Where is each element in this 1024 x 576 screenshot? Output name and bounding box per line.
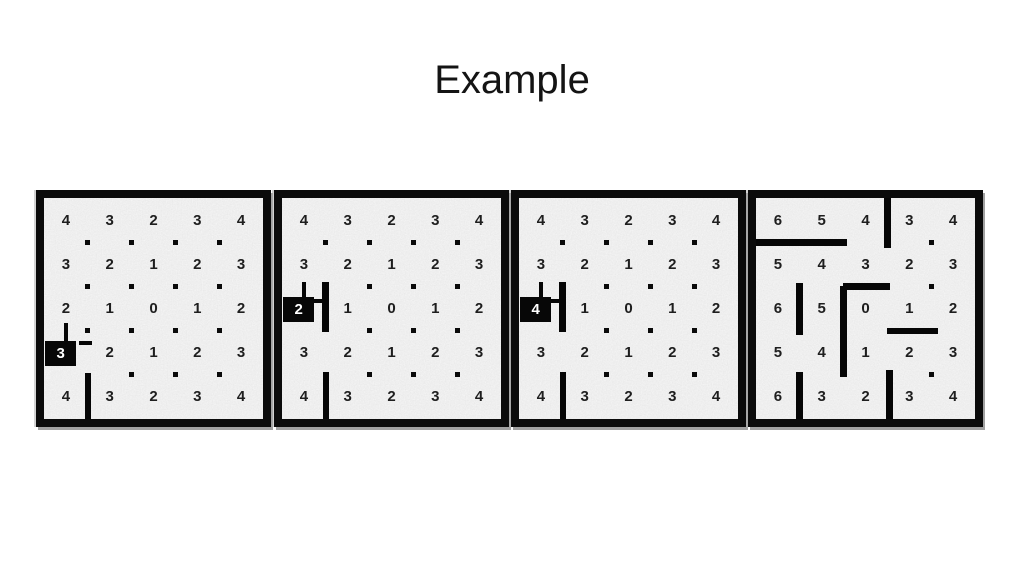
robot-cell: 4	[520, 297, 552, 322]
wall-segment	[323, 372, 329, 419]
corner-dot	[85, 240, 90, 245]
grid-cell: 2	[607, 198, 651, 242]
distance-value: 1	[861, 344, 869, 361]
corner-dot	[367, 284, 372, 289]
corner-dot	[411, 284, 416, 289]
grid-cell: 0	[607, 286, 651, 330]
distance-value: 2	[431, 256, 439, 273]
grid-cell: 4	[44, 375, 88, 419]
grid-cell: 3	[282, 331, 326, 375]
corner-dot	[129, 240, 134, 245]
distance-value: 3	[905, 388, 913, 405]
wall-segment	[559, 282, 566, 332]
distance-value: 2	[624, 212, 632, 229]
grid-cell: 3	[519, 331, 563, 375]
grid-cell: 3	[413, 375, 457, 419]
corner-dot	[692, 240, 697, 245]
grid-cell: 3	[887, 375, 931, 419]
distance-value: 2	[581, 344, 589, 361]
distance-value: 2	[62, 300, 70, 317]
corner-dot	[173, 372, 178, 377]
distance-value: 2	[149, 388, 157, 405]
distance-value: 1	[106, 300, 114, 317]
grid-cell: 3	[694, 331, 738, 375]
grid-cell: 2	[88, 242, 132, 286]
corner-dot	[217, 240, 222, 245]
grid-cell: 1	[132, 242, 176, 286]
distance-value: 3	[668, 388, 676, 405]
maze-panel-4: 6543454323650125412363234	[748, 190, 983, 427]
grid-cell: 1	[132, 331, 176, 375]
grid-cell: 1	[370, 331, 414, 375]
distance-value: 3	[905, 212, 913, 229]
corner-dot	[455, 372, 460, 377]
distance-value: 3	[237, 344, 245, 361]
grid-cell: 2	[88, 331, 132, 375]
corner-dot	[173, 328, 178, 333]
grid-cell: 2	[132, 198, 176, 242]
distance-value: 4	[537, 212, 545, 229]
distance-value: 0	[861, 300, 869, 317]
corner-dot	[455, 328, 460, 333]
distance-value: 3	[712, 256, 720, 273]
grid-cell: 3	[219, 331, 263, 375]
corner-dot	[604, 284, 609, 289]
distance-value: 3	[62, 256, 70, 273]
grid-cell: 3	[175, 375, 219, 419]
grid-cell: 2	[563, 331, 607, 375]
robot-cell: 3	[45, 341, 77, 366]
distance-value: 2	[949, 300, 957, 317]
maze-grid-2: 4323432123210123212343234	[282, 198, 501, 419]
grid-cell: 4	[931, 198, 975, 242]
distance-value: 4	[949, 212, 957, 229]
grid-cell: 4	[519, 198, 563, 242]
wall-segment	[887, 328, 938, 334]
distance-value: 3	[712, 344, 720, 361]
grid-cell: 5	[756, 242, 800, 286]
distance-value: 2	[193, 344, 201, 361]
distance-value: 1	[387, 256, 395, 273]
grid-cell: 1	[650, 286, 694, 330]
grid-cell: 4	[519, 375, 563, 419]
grid-cell: 2	[887, 331, 931, 375]
distance-value: 0	[387, 300, 395, 317]
corner-dot	[411, 372, 416, 377]
distance-value: 2	[387, 388, 395, 405]
distance-value: 4	[62, 212, 70, 229]
grid-cell: 1	[175, 286, 219, 330]
slide: Example 4323432123210123212343234 432343…	[0, 0, 1024, 576]
maze-panel-1: 4323432123210123212343234	[36, 190, 271, 427]
grid-cell: 3	[282, 242, 326, 286]
distance-value: 3	[431, 212, 439, 229]
corner-dot	[560, 240, 565, 245]
maze-grid-3: 4323432123410123212343234	[519, 198, 738, 419]
grid-cell: 1	[370, 242, 414, 286]
wall-segment	[884, 198, 891, 248]
distance-value: 2	[344, 256, 352, 273]
distance-value: 2	[475, 300, 483, 317]
grid-cell: 2	[844, 375, 888, 419]
wall-segment	[322, 282, 329, 332]
wall-segment	[79, 341, 92, 345]
grid-cell: 0	[132, 286, 176, 330]
grid-cell: 3	[563, 375, 607, 419]
distance-value: 2	[344, 344, 352, 361]
grid-cell: 0	[844, 286, 888, 330]
grid-cell: 2	[931, 286, 975, 330]
wall-segment	[886, 370, 893, 419]
distance-value: 3	[475, 256, 483, 273]
distance-value: 3	[861, 256, 869, 273]
grid-cell: 2	[219, 286, 263, 330]
grid-cell: 1	[413, 286, 457, 330]
grid-cell: 3	[800, 375, 844, 419]
grid-cell: 2	[175, 331, 219, 375]
distance-value: 1	[668, 300, 676, 317]
grid-cell: 2	[326, 242, 370, 286]
distance-value: 3	[581, 388, 589, 405]
distance-value: 2	[905, 256, 913, 273]
corner-dot	[648, 284, 653, 289]
corner-dot	[367, 240, 372, 245]
distance-value: 4	[237, 388, 245, 405]
distance-value: 4	[475, 212, 483, 229]
wall-segment	[756, 239, 847, 246]
distance-value: 2	[668, 256, 676, 273]
grid-cell: 3	[219, 242, 263, 286]
distance-value: 0	[149, 300, 157, 317]
distance-value: 3	[581, 212, 589, 229]
grid-cell: 4	[457, 375, 501, 419]
distance-value: 1	[387, 344, 395, 361]
wall-segment	[302, 282, 306, 299]
distance-value: 3	[106, 212, 114, 229]
grid-cell: 1	[887, 286, 931, 330]
grid-cell: 2	[887, 242, 931, 286]
corner-dot	[173, 240, 178, 245]
slide-title: Example	[0, 58, 1024, 103]
distance-value: 6	[774, 300, 782, 317]
grid-cell: 4	[694, 375, 738, 419]
wall-segment	[539, 282, 543, 299]
grid-cell: 4	[44, 198, 88, 242]
grid-cell: 4	[219, 198, 263, 242]
distance-value: 1	[624, 344, 632, 361]
distance-value: 4	[818, 256, 826, 273]
distance-value: 1	[149, 344, 157, 361]
corner-dot	[129, 372, 134, 377]
corner-dot	[411, 328, 416, 333]
distance-value: 2	[387, 212, 395, 229]
distance-value: 2	[668, 344, 676, 361]
grid-cell: 4	[844, 198, 888, 242]
grid-cell: 3	[931, 331, 975, 375]
grid-cell: 2	[457, 286, 501, 330]
distance-value: 3	[344, 388, 352, 405]
distance-value: 3	[344, 212, 352, 229]
distance-value: 3	[300, 344, 308, 361]
distance-value: 1	[624, 256, 632, 273]
corner-dot	[85, 328, 90, 333]
corner-dot	[217, 284, 222, 289]
grid-cell: 3	[413, 198, 457, 242]
grid-cell: 3	[326, 198, 370, 242]
grid-cell: 2	[650, 242, 694, 286]
grid-cell: 3	[457, 242, 501, 286]
corner-dot	[648, 240, 653, 245]
grid-cell: 6	[756, 375, 800, 419]
distance-value: 4	[712, 212, 720, 229]
grid-cell: 0	[370, 286, 414, 330]
grid-cell: 2	[132, 375, 176, 419]
distance-value: 5	[774, 344, 782, 361]
wall-segment	[560, 372, 566, 419]
distance-value: 2	[106, 256, 114, 273]
grid-cell: 3	[175, 198, 219, 242]
grid-cell: 2	[650, 331, 694, 375]
grid-cell: 2	[175, 242, 219, 286]
corner-dot	[367, 328, 372, 333]
grid-cell: 4	[694, 198, 738, 242]
grid-cell: 4	[800, 242, 844, 286]
wall-segment	[796, 283, 803, 335]
corner-dot	[323, 240, 328, 245]
wall-segment	[843, 283, 890, 290]
distance-value: 1	[431, 300, 439, 317]
distance-value: 2	[581, 256, 589, 273]
distance-value: 5	[818, 212, 826, 229]
wall-segment	[840, 286, 847, 378]
grid-cell: 1	[607, 242, 651, 286]
corner-dot	[692, 328, 697, 333]
corner-dot	[692, 284, 697, 289]
corner-dot	[929, 284, 934, 289]
corner-dot	[455, 284, 460, 289]
distance-value: 4	[300, 388, 308, 405]
wall-segment	[85, 373, 91, 419]
distance-value: 6	[774, 212, 782, 229]
distance-value: 2	[712, 300, 720, 317]
grid-cell: 2	[326, 331, 370, 375]
grid-cell: 3	[844, 242, 888, 286]
grid-cell: 5	[800, 198, 844, 242]
distance-value: 2	[905, 344, 913, 361]
corner-dot	[217, 372, 222, 377]
distance-value: 3	[818, 388, 826, 405]
corner-dot	[129, 284, 134, 289]
grid-cell: 6	[756, 198, 800, 242]
grid-cell: 3	[694, 242, 738, 286]
grid-cell: 3	[887, 198, 931, 242]
grid-cell: 4	[457, 198, 501, 242]
distance-value: 2	[431, 344, 439, 361]
grid-cell: 1	[607, 331, 651, 375]
grid-cell: 5	[756, 331, 800, 375]
grid-cell: 3	[650, 375, 694, 419]
distance-value: 4	[237, 212, 245, 229]
maze-grid-1: 4323432123210123212343234	[44, 198, 263, 419]
maze-panel-3: 4323432123410123212343234	[511, 190, 746, 427]
distance-value: 3	[193, 212, 201, 229]
corner-dot	[929, 240, 934, 245]
distance-value: 4	[949, 388, 957, 405]
grid-cell: 3	[457, 331, 501, 375]
distance-value: 1	[905, 300, 913, 317]
maze-panel-2: 4323432123210123212343234	[274, 190, 509, 427]
distance-value: 4	[861, 212, 869, 229]
grid-cell: 3	[88, 375, 132, 419]
grid-cell: 2	[370, 375, 414, 419]
corner-dot	[129, 328, 134, 333]
distance-value: 1	[149, 256, 157, 273]
maze-grid-4: 6543454323650125412363234	[756, 198, 975, 419]
grid-cell: 1	[326, 286, 370, 330]
grid-cell: 4	[282, 375, 326, 419]
distance-value: 2	[149, 212, 157, 229]
distance-value: 0	[624, 300, 632, 317]
distance-value: 3	[193, 388, 201, 405]
distance-value: 1	[581, 300, 589, 317]
distance-value: 1	[193, 300, 201, 317]
corner-dot	[173, 284, 178, 289]
grid-cell: 1	[563, 286, 607, 330]
distance-value: 2	[861, 388, 869, 405]
distance-value: 2	[193, 256, 201, 273]
corner-dot	[411, 240, 416, 245]
corner-dot	[929, 372, 934, 377]
corner-dot	[455, 240, 460, 245]
distance-value: 1	[344, 300, 352, 317]
grid-cell: 2	[694, 286, 738, 330]
corner-dot	[367, 372, 372, 377]
grid-cell: 3	[650, 198, 694, 242]
grid-cell: 3	[326, 375, 370, 419]
distance-value: 2	[106, 344, 114, 361]
distance-value: 3	[237, 256, 245, 273]
distance-value: 3	[431, 388, 439, 405]
corner-dot	[85, 284, 90, 289]
distance-value: 3	[300, 256, 308, 273]
distance-value: 4	[818, 344, 826, 361]
grid-cell: 3	[931, 242, 975, 286]
distance-value: 3	[668, 212, 676, 229]
grid-cell: 2	[413, 242, 457, 286]
grid-cell: 3	[519, 242, 563, 286]
distance-value: 2	[624, 388, 632, 405]
grid-cell: 6	[756, 286, 800, 330]
grid-cell: 3	[563, 198, 607, 242]
distance-value: 4	[62, 388, 70, 405]
grid-cell: 4	[800, 331, 844, 375]
distance-value: 2	[237, 300, 245, 317]
grid-cell: 4	[219, 375, 263, 419]
corner-dot	[217, 328, 222, 333]
corner-dot	[648, 372, 653, 377]
grid-cell: 1	[844, 331, 888, 375]
grid-cell: 5	[800, 286, 844, 330]
distance-value: 4	[300, 212, 308, 229]
grid-cell: 4	[931, 375, 975, 419]
distance-value: 3	[537, 256, 545, 273]
distance-value: 4	[537, 388, 545, 405]
grid-cell: 3	[88, 198, 132, 242]
distance-value: 4	[475, 388, 483, 405]
grid-cell: 2	[370, 198, 414, 242]
wall-segment	[796, 372, 803, 419]
distance-value: 3	[475, 344, 483, 361]
grid-cell: 2	[413, 331, 457, 375]
distance-value: 4	[712, 388, 720, 405]
corner-dot	[692, 372, 697, 377]
distance-value: 5	[818, 300, 826, 317]
distance-value: 3	[537, 344, 545, 361]
grid-cell: 1	[88, 286, 132, 330]
corner-dot	[604, 328, 609, 333]
grid-cell: 2	[607, 375, 651, 419]
distance-value: 6	[774, 388, 782, 405]
wall-segment	[64, 323, 68, 344]
distance-value: 3	[949, 256, 957, 273]
distance-value: 5	[774, 256, 782, 273]
corner-dot	[604, 372, 609, 377]
grid-cell: 2	[563, 242, 607, 286]
corner-dot	[648, 328, 653, 333]
grid-cell: 3	[44, 242, 88, 286]
grid-cell: 4	[282, 198, 326, 242]
distance-value: 3	[949, 344, 957, 361]
corner-dot	[604, 240, 609, 245]
robot-cell: 2	[283, 297, 315, 322]
distance-value: 3	[106, 388, 114, 405]
